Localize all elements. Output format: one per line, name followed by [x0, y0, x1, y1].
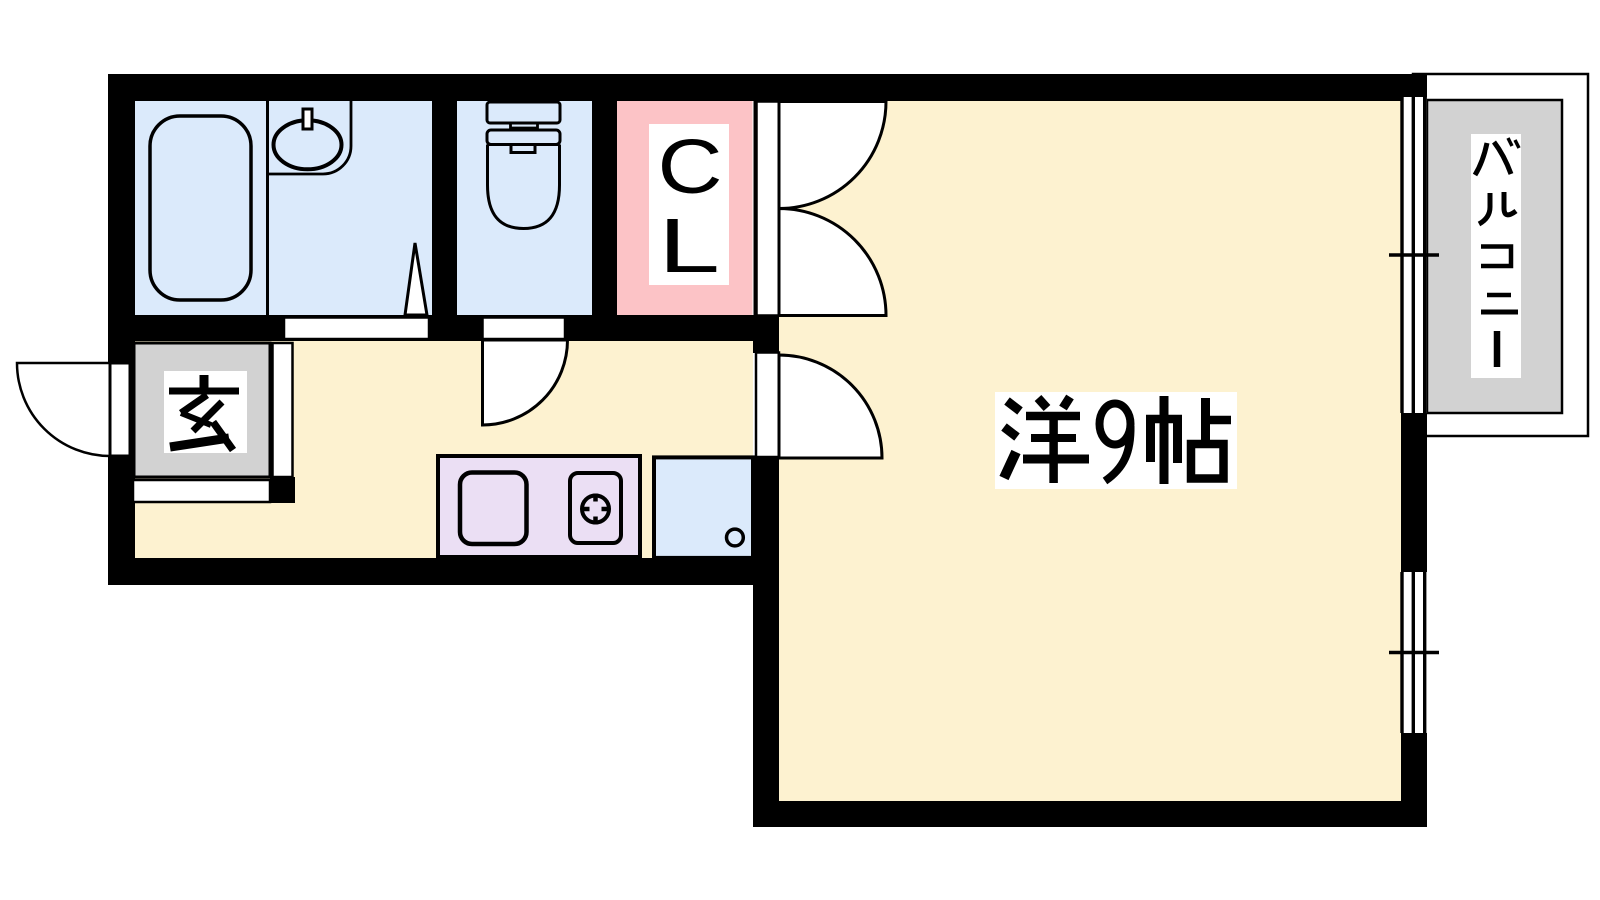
svg-text:C: C — [657, 123, 722, 209]
svg-text:L: L — [658, 203, 720, 288]
